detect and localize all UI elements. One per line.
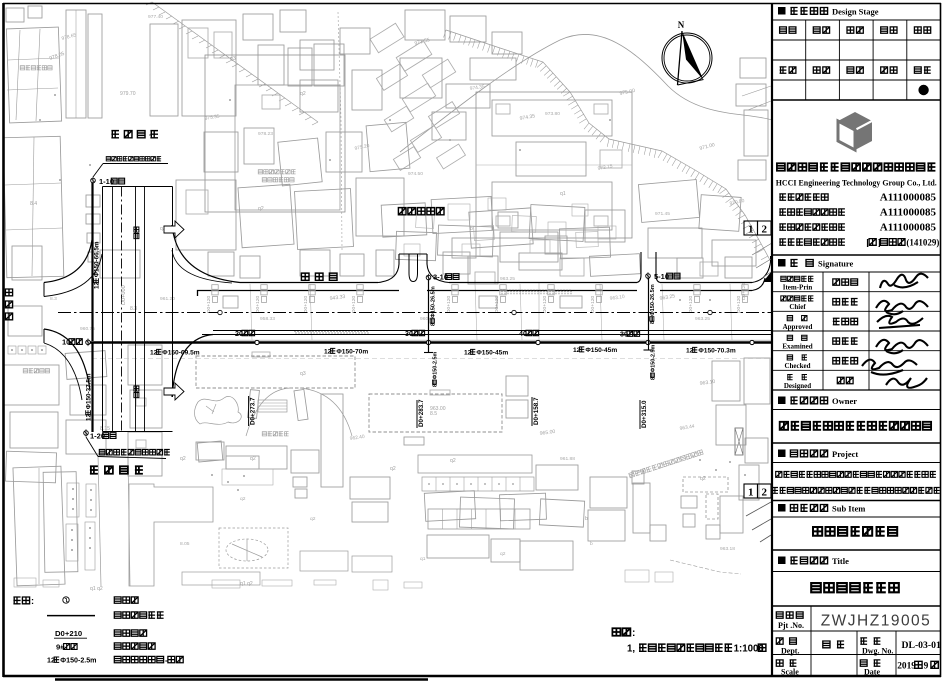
svg-text:D0+273.7: D0+273.7 xyxy=(250,397,257,425)
svg-text:977.40: 977.40 xyxy=(148,14,163,20)
svg-text:Project: Project xyxy=(832,449,858,459)
svg-text:D0+120: D0+120 xyxy=(351,295,357,313)
svg-text:963.25: 963.25 xyxy=(500,276,515,282)
svg-text:Sub Item: Sub Item xyxy=(832,504,865,514)
svg-text:q3: q3 xyxy=(230,56,236,62)
svg-text:Pjt .No.: Pjt .No. xyxy=(778,621,804,630)
svg-text:Signature: Signature xyxy=(818,259,853,269)
svg-text:b: b xyxy=(470,226,473,232)
svg-text:q2: q2 xyxy=(310,516,316,522)
svg-text:b: b xyxy=(590,541,593,547)
svg-text:D0+120: D0+120 xyxy=(446,295,452,313)
svg-text:D0+158.7: D0+158.7 xyxy=(533,397,540,425)
svg-text:1: 1 xyxy=(748,224,754,236)
svg-text:(141029): (141029) xyxy=(906,238,939,248)
svg-text:Φ150-37.5m: Φ150-37.5m xyxy=(86,373,93,409)
svg-text:8.05: 8.05 xyxy=(180,541,190,547)
svg-text:Φ150-45m: Φ150-45m xyxy=(476,350,508,357)
svg-text:961.88: 961.88 xyxy=(560,456,575,462)
svg-text:N: N xyxy=(678,20,685,30)
svg-text:D0+120: D0+120 xyxy=(494,295,500,313)
svg-text:D0+120: D0+120 xyxy=(736,295,742,313)
svg-text:Owner: Owner xyxy=(832,396,857,406)
svg-text:Chief: Chief xyxy=(789,303,806,311)
svg-text:2019: 2019 xyxy=(897,662,916,672)
svg-text:Checked: Checked xyxy=(784,362,810,370)
svg-text:A111000085: A111000085 xyxy=(880,207,937,219)
svg-text:Examined: Examined xyxy=(782,343,812,351)
svg-text:q2: q2 xyxy=(390,466,396,472)
svg-text:2: 2 xyxy=(761,224,767,236)
svg-text:8.3: 8.3 xyxy=(50,296,57,302)
svg-text:q1: q1 xyxy=(560,191,566,197)
svg-text:DL-03-01: DL-03-01 xyxy=(902,640,941,651)
svg-text:D0+120: D0+120 xyxy=(303,295,309,313)
svg-text:q2: q2 xyxy=(240,496,246,502)
svg-text:Date: Date xyxy=(864,668,880,677)
svg-text:973.80: 973.80 xyxy=(545,111,560,117)
svg-text:1:1000: 1:1000 xyxy=(734,644,764,655)
svg-text:b: b xyxy=(585,516,588,522)
svg-text:q2: q2 xyxy=(300,91,306,97)
svg-text:979.70: 979.70 xyxy=(120,91,136,97)
svg-text:Item-Prin: Item-Prin xyxy=(783,284,813,292)
svg-text:Φ150-70m: Φ150-70m xyxy=(336,349,368,356)
svg-text:2: 2 xyxy=(761,487,767,499)
svg-text:D0+000: D0+000 xyxy=(121,285,127,305)
svg-text:Φ150-45m: Φ150-45m xyxy=(585,347,617,354)
svg-text:Approved: Approved xyxy=(783,323,813,331)
svg-text:9: 9 xyxy=(924,662,929,672)
svg-text:8.4: 8.4 xyxy=(30,201,37,207)
svg-text:q2: q2 xyxy=(180,456,186,462)
svg-text:8.3: 8.3 xyxy=(130,306,137,312)
svg-text:974.50: 974.50 xyxy=(408,171,423,177)
svg-text:ZWJHZ19005: ZWJHZ19005 xyxy=(821,613,932,630)
svg-text:Φ150-2.5m: Φ150-2.5m xyxy=(60,657,96,665)
svg-text:12: 12 xyxy=(47,657,55,665)
svg-text:958.33: 958.33 xyxy=(260,316,275,322)
svg-text:Title: Title xyxy=(832,556,849,566)
svg-text:q1 q2: q1 q2 xyxy=(90,586,103,592)
svg-text:D0+120: D0+120 xyxy=(255,295,261,313)
svg-text:Φ150-2.5m: Φ150-2.5m xyxy=(433,351,439,379)
svg-text:Design Stage: Design Stage xyxy=(832,7,879,17)
svg-text:Φ150-26.5m: Φ150-26.5m xyxy=(650,284,656,316)
svg-text:A111000085: A111000085 xyxy=(880,192,937,204)
svg-text:1,: 1, xyxy=(627,644,635,655)
svg-text:D0+120: D0+120 xyxy=(206,295,212,313)
svg-text:978.23: 978.23 xyxy=(258,131,273,137)
svg-text:D0+120: D0+120 xyxy=(688,295,694,313)
svg-text:D0+120: D0+120 xyxy=(590,295,596,313)
svg-text:q2: q2 xyxy=(700,476,706,482)
svg-text:q2: q2 xyxy=(500,551,506,557)
svg-text:A111000085: A111000085 xyxy=(880,222,937,234)
svg-text:Designed: Designed xyxy=(784,382,811,390)
svg-text:971.45: 971.45 xyxy=(655,211,670,217)
svg-text:Φ150-66.5m: Φ150-66.5m xyxy=(94,241,101,277)
svg-text:q3: q3 xyxy=(300,371,306,377)
svg-text:Φ150-70.3m: Φ150-70.3m xyxy=(698,348,735,355)
svg-text:D0+283.7: D0+283.7 xyxy=(418,399,425,427)
svg-text:q1: q1 xyxy=(420,556,426,562)
svg-text::: : xyxy=(632,628,635,639)
svg-text:Scale: Scale xyxy=(781,668,799,677)
svg-text:Φ150-69.5m: Φ150-69.5m xyxy=(162,350,199,357)
svg-text:D0+120: D0+120 xyxy=(542,295,548,313)
svg-text:1: 1 xyxy=(748,487,754,499)
svg-text:HCCI Engineering Technology Gr: HCCI Engineering Technology Group Co., L… xyxy=(776,178,937,188)
svg-text:q1 q2: q1 q2 xyxy=(240,581,253,587)
svg-text:q2: q2 xyxy=(250,456,256,462)
svg-text::: : xyxy=(31,596,34,606)
svg-text:q2: q2 xyxy=(258,206,264,212)
svg-text:D0+315.0: D0+315.0 xyxy=(641,400,648,428)
svg-text:D0+210: D0+210 xyxy=(55,629,82,638)
svg-text:8.5: 8.5 xyxy=(430,411,437,417)
svg-text:Φ150-26.5m: Φ150-26.5m xyxy=(431,286,437,318)
svg-text:Φ150-2.5m: Φ150-2.5m xyxy=(651,344,657,372)
svg-text:q2: q2 xyxy=(450,458,456,464)
svg-text:963.25: 963.25 xyxy=(695,316,710,322)
svg-text:963.18: 963.18 xyxy=(720,546,735,552)
